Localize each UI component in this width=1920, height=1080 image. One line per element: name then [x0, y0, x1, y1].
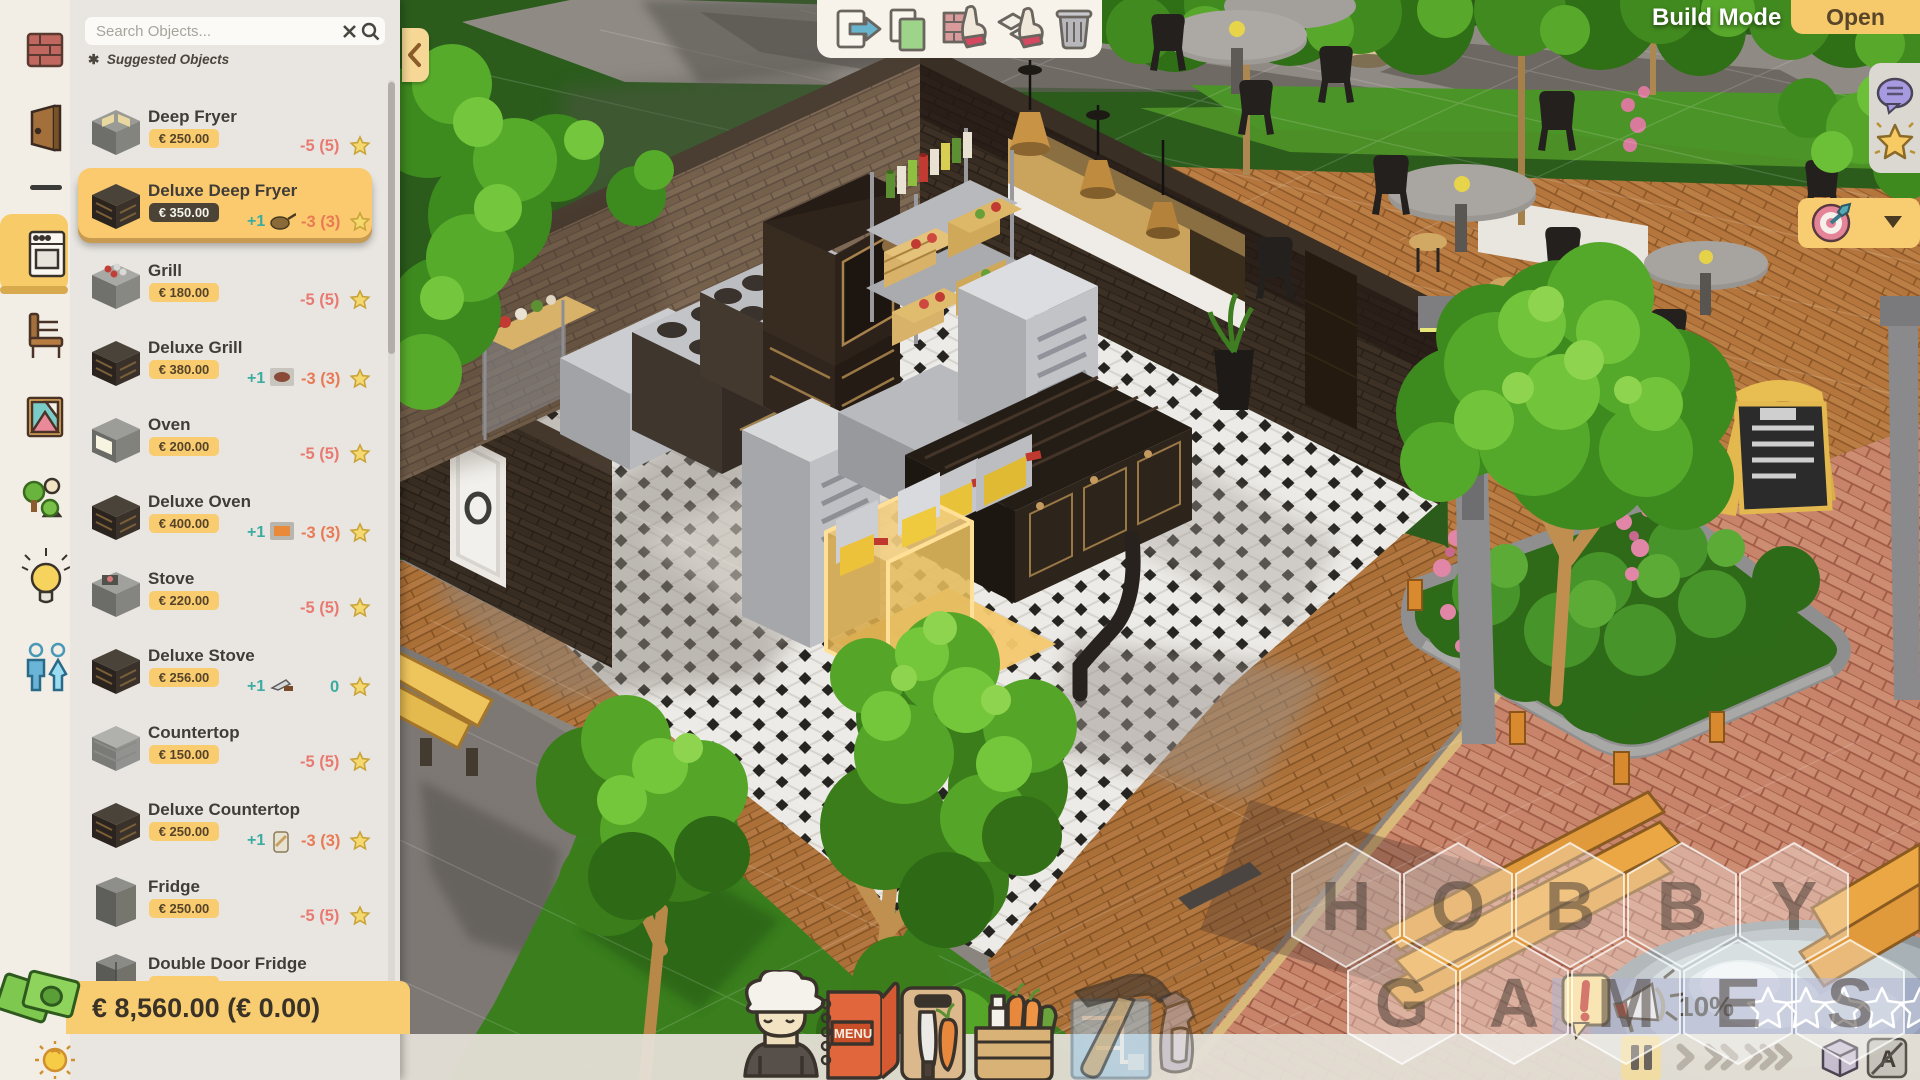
svg-text:O: O [1431, 867, 1485, 945]
svg-text:MENU: MENU [834, 1026, 872, 1041]
svg-text:B: B [1657, 867, 1708, 945]
svg-text:S: S [1827, 964, 1874, 1042]
svg-text:G: G [1375, 964, 1429, 1042]
svg-text:B: B [1545, 867, 1596, 945]
svg-text:A: A [1489, 964, 1540, 1042]
svg-text:Y: Y [1771, 867, 1818, 945]
svg-text:H: H [1321, 867, 1372, 945]
svg-text:M: M [1597, 964, 1655, 1042]
svg-text:E: E [1715, 964, 1762, 1042]
